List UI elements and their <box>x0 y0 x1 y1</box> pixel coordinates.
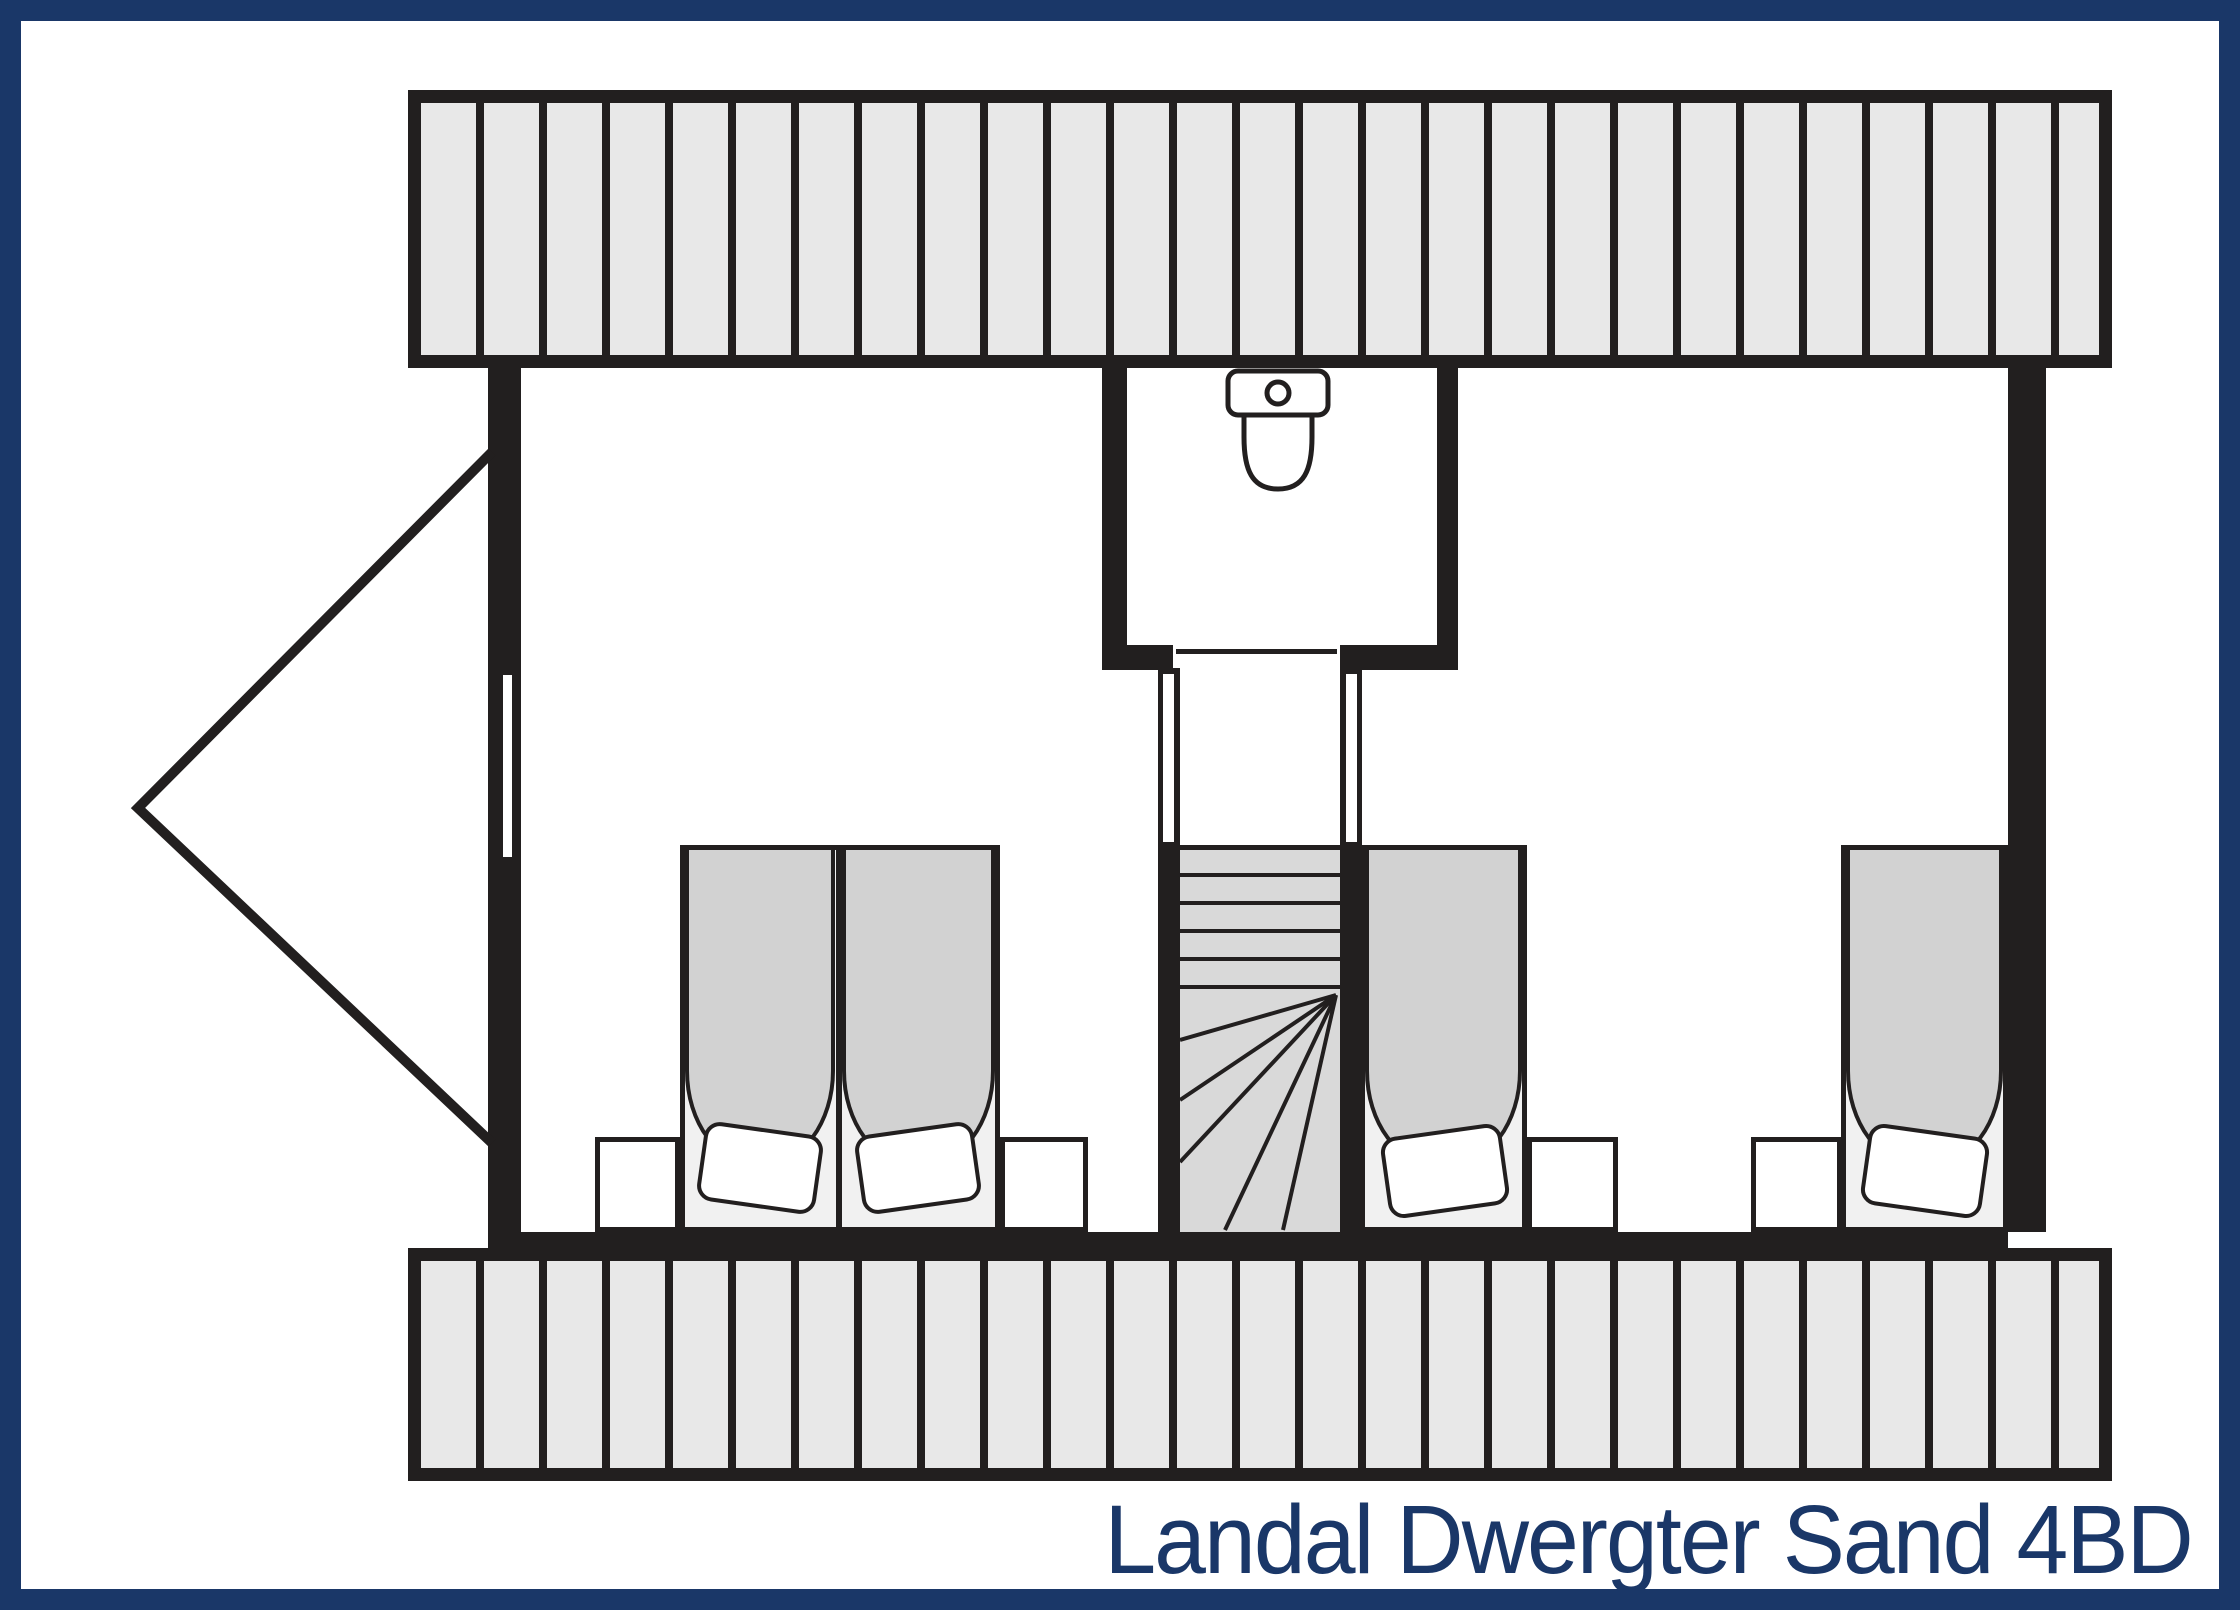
duvet-left-single <box>685 850 835 1167</box>
nightstand <box>1527 1137 1618 1232</box>
wc-door <box>1176 649 1337 654</box>
stair-winder-lines <box>1180 850 1340 1232</box>
exterior-wall-right <box>2008 358 2046 1232</box>
roof-hatch-band-bottom <box>408 1248 2112 1481</box>
duvet-right-single <box>842 850 995 1167</box>
pillow-left <box>695 1120 825 1216</box>
bedroom-door-right <box>1346 674 1357 842</box>
wc-wall-bottom-left-segment <box>1102 645 1173 670</box>
nightstand <box>1000 1137 1088 1232</box>
nightstand <box>595 1137 680 1232</box>
pillow-middle <box>1379 1122 1511 1220</box>
floorplan-canvas: Landal Dwergter Sand 4BD <box>0 0 2240 1610</box>
wc-wall-right <box>1437 360 1458 670</box>
duvet-right <box>1846 850 2003 1167</box>
roof-hatch-band-top <box>408 90 2112 368</box>
window-left-wall <box>501 673 514 859</box>
staircase <box>1180 845 1340 1232</box>
plan-title: Landal Dwergter Sand 4BD <box>1104 1484 2192 1596</box>
pillow-far-right <box>1859 1122 1991 1220</box>
duvet-middle <box>1365 850 1522 1167</box>
wc-wall-left <box>1102 360 1127 670</box>
exterior-wall-bottom <box>488 1232 2008 1260</box>
nightstand <box>1751 1137 1842 1232</box>
gable-roof-outline <box>128 440 500 1152</box>
wc-wall-bottom-right-segment <box>1340 645 1458 670</box>
pillow-right <box>853 1120 983 1216</box>
toilet-icon <box>1220 365 1340 500</box>
bedroom-door-left <box>1163 674 1174 842</box>
